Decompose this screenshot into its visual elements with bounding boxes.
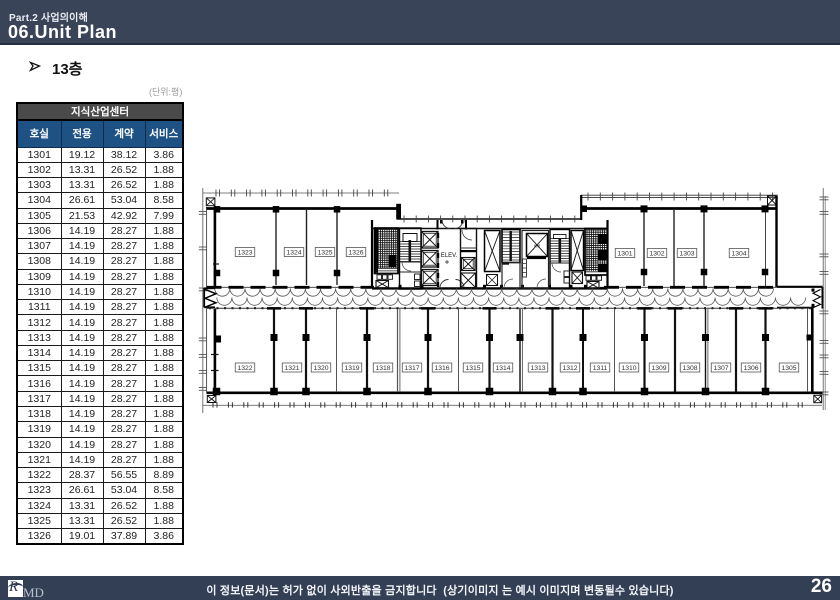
- svg-text:1313: 1313: [530, 365, 545, 372]
- svg-text:1318: 1318: [375, 365, 390, 372]
- svg-text:1308: 1308: [682, 365, 697, 372]
- svg-text:1325: 1325: [317, 250, 332, 257]
- svg-text:1312: 1312: [562, 365, 577, 372]
- svg-text:1311: 1311: [593, 365, 608, 372]
- svg-text:1301: 1301: [617, 251, 632, 258]
- svg-text:1321: 1321: [284, 365, 299, 372]
- svg-text:1304: 1304: [731, 251, 746, 258]
- svg-text:1326: 1326: [348, 250, 363, 257]
- svg-text:1306: 1306: [743, 365, 758, 372]
- svg-text:1319: 1319: [344, 365, 359, 372]
- svg-text:1317: 1317: [404, 365, 419, 372]
- svg-text:1303: 1303: [679, 251, 694, 258]
- svg-text:1314: 1314: [495, 365, 510, 372]
- svg-text:1324: 1324: [286, 250, 301, 257]
- svg-text:1320: 1320: [313, 365, 328, 372]
- svg-text:1323: 1323: [237, 250, 252, 257]
- svg-text:1310: 1310: [621, 365, 636, 372]
- svg-text:1307: 1307: [713, 365, 728, 372]
- svg-text:1302: 1302: [649, 251, 664, 258]
- svg-text:1322: 1322: [237, 365, 252, 372]
- svg-text:ELEV.: ELEV.: [441, 253, 458, 259]
- svg-text:1309: 1309: [651, 365, 666, 372]
- svg-text:비상: 비상: [534, 243, 541, 248]
- svg-text:1316: 1316: [434, 365, 449, 372]
- svg-text:1315: 1315: [465, 365, 480, 372]
- svg-text:1305: 1305: [781, 365, 796, 372]
